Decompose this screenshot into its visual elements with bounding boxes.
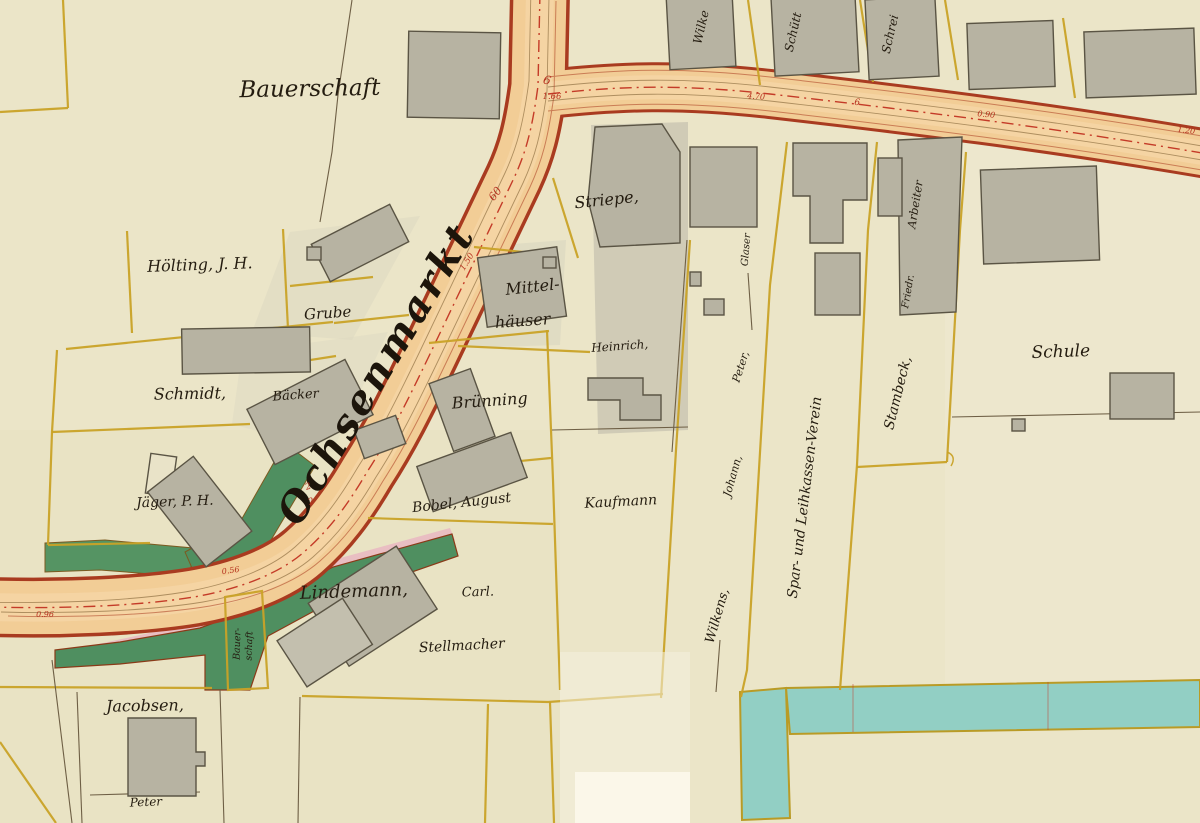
parcel-line xyxy=(0,687,212,688)
label-schule: Schule xyxy=(1031,341,1090,363)
measure-470: 4.70 xyxy=(746,91,765,101)
label-jaeger: Jäger, P. H. xyxy=(133,493,214,512)
label-lindemann: Lindemann, xyxy=(298,579,408,604)
building-small-square xyxy=(1012,419,1025,431)
building-mid-west xyxy=(690,147,757,227)
building-top-left xyxy=(407,31,500,119)
measure-6: 6 xyxy=(854,98,861,108)
cadastral-map: Bauerschaft Hölting, J. H. Grube Schmidt… xyxy=(0,0,1200,823)
label-lindemann-first: Carl. xyxy=(462,584,495,600)
building-mid-east xyxy=(815,253,860,315)
building-schmidt xyxy=(182,327,311,374)
building-arbeiter-annex xyxy=(878,158,902,216)
building-top-row-4 xyxy=(967,21,1055,90)
building-schule-annex xyxy=(1110,373,1174,419)
label-schmidt: Schmidt, xyxy=(154,383,227,403)
measure-166: 1.66 xyxy=(543,92,563,102)
label-bauerschaft: Bauerschaft xyxy=(238,75,381,103)
building-small-square xyxy=(543,257,556,268)
building-top-row-3 xyxy=(865,0,939,80)
building-small-square xyxy=(704,299,724,315)
label-mittelhaeuser-2: häuser xyxy=(494,309,552,332)
label-grube: Grube xyxy=(303,302,352,323)
building-schule-main xyxy=(980,166,1099,264)
building-small-square xyxy=(307,247,321,260)
building-small-square xyxy=(690,272,701,286)
building-striepe xyxy=(588,124,680,247)
building-top-row-5 xyxy=(1084,28,1196,98)
label-bauerschaft-strip-1: Bauer- xyxy=(231,628,243,662)
paper-patch-bright xyxy=(575,772,690,823)
measure-090: 0.90 xyxy=(977,109,996,120)
map-canvas: Bauerschaft Hölting, J. H. Grube Schmidt… xyxy=(0,0,1200,823)
measure-096: 0.96 xyxy=(36,610,54,619)
label-peter-bottom: Peter xyxy=(128,794,163,809)
building-jacobsen xyxy=(128,718,205,796)
label-jacobsen: Jacobsen, xyxy=(103,695,184,715)
water-channel-arm xyxy=(740,688,790,820)
water-channel-horizontal xyxy=(786,680,1200,734)
label-hoelting: Hölting, J. H. xyxy=(146,253,253,276)
label-bauerschaft-strip-2: schaft xyxy=(243,631,255,661)
